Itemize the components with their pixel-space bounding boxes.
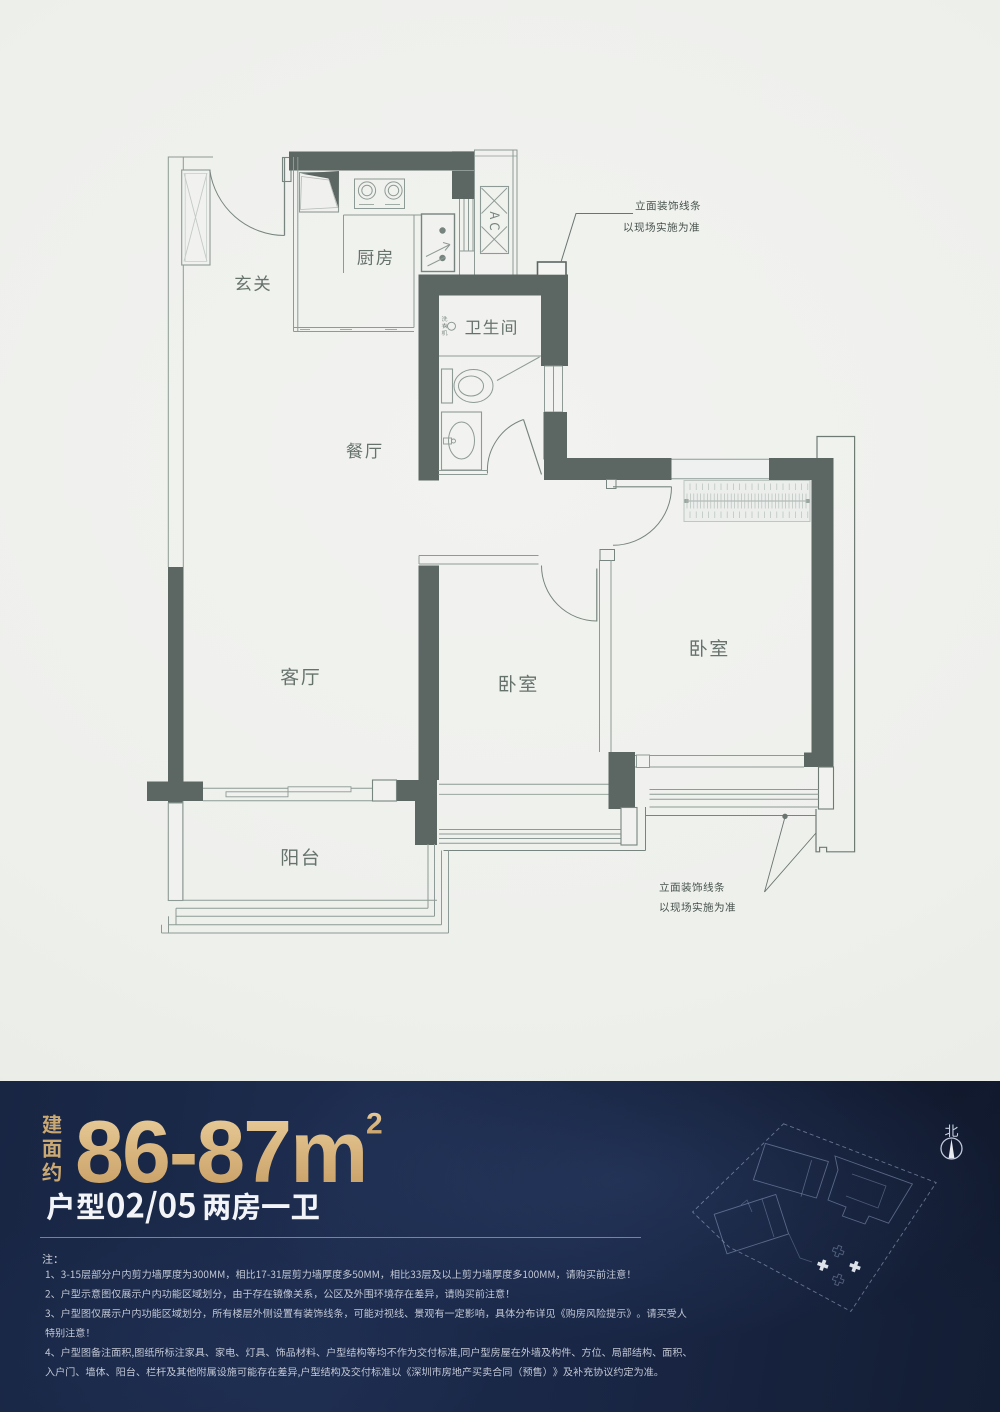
svg-text:2: 2 <box>366 1108 383 1141</box>
svg-text:86-87m: 86-87m <box>75 1102 366 1201</box>
